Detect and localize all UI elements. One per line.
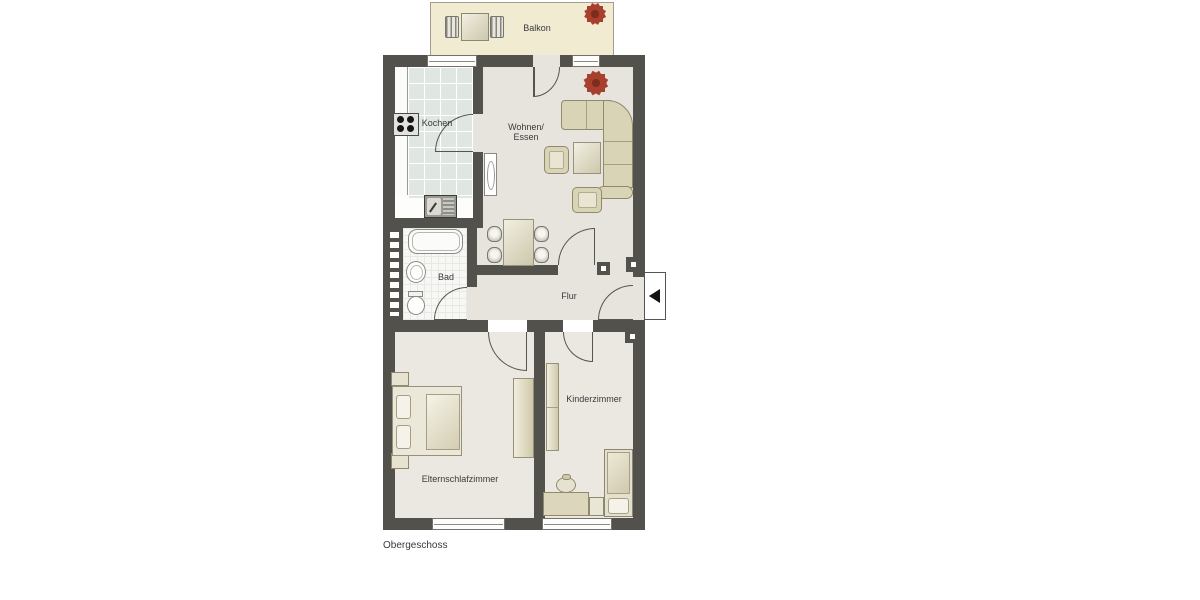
glass-block-wall (385, 228, 403, 320)
parents-room-label: Elternschlafzimmer (422, 474, 499, 484)
entrance-door-panel (598, 319, 633, 321)
balcony-label: Balkon (523, 23, 551, 33)
nightstand (589, 497, 604, 516)
radiator-cabinet (484, 153, 497, 196)
plant-starburst-icon (584, 3, 606, 25)
single-bed (604, 449, 633, 517)
patio-chair-left (445, 16, 459, 38)
stove-burner (397, 116, 404, 123)
washbasin (406, 261, 426, 283)
stove-burner (407, 125, 414, 132)
balcony-door-opening (533, 55, 560, 67)
patio-table (461, 13, 489, 41)
kids-room-label: Kinderzimmer (566, 394, 622, 404)
bed-mattress (607, 452, 630, 494)
wardrobe-divider-line (547, 407, 558, 408)
hall-bottom-wall-mid (527, 320, 563, 332)
stove-burner (407, 116, 414, 123)
hall-bottom-wall-left (395, 320, 488, 332)
floor-plan-page: Balkon (0, 0, 1200, 600)
patio-chair-right (490, 16, 504, 38)
glass-block-pattern (390, 232, 399, 316)
wall-post (625, 329, 639, 343)
nightstand (391, 372, 409, 386)
floor-title: Obergeschoss (383, 540, 447, 551)
post-dot (601, 266, 606, 271)
armchair-cushion (578, 192, 597, 208)
sofa-seam (604, 164, 632, 165)
armchair (544, 146, 569, 174)
dining-chair (534, 247, 549, 263)
wall-post (597, 262, 610, 275)
kitchen-door-panel (435, 151, 473, 153)
desk (543, 492, 589, 516)
bed-pillow (396, 425, 411, 449)
sofa-seam (604, 141, 632, 142)
bath-label: Bad (438, 272, 454, 282)
hall-label: Flur (561, 291, 577, 301)
desk-chair (556, 477, 576, 493)
bathtub (408, 229, 463, 254)
toilet-bowl (407, 296, 425, 315)
washbasin-inner (410, 265, 423, 280)
radiator-oval (487, 161, 495, 190)
window-pane (434, 524, 503, 525)
living-door-panel (594, 228, 596, 265)
desk-chair-back (562, 474, 571, 480)
balcony-door-panel (533, 67, 535, 97)
bed-pillow (608, 498, 629, 514)
window-pane (429, 61, 475, 62)
kitchen-living-wall-upper (473, 67, 483, 114)
stove (393, 113, 419, 136)
kids-room-door-panel (592, 332, 594, 362)
bed-mattress (426, 394, 460, 450)
window-pane (544, 524, 610, 525)
kitchen-label: Kochen (422, 118, 453, 128)
armchair (572, 187, 602, 213)
dining-chair (487, 247, 502, 263)
living-window (572, 55, 600, 67)
corner-sofa-right-arm (603, 138, 633, 188)
kitchen-window (427, 55, 477, 67)
dining-chair (534, 226, 549, 242)
living-label-line2: Essen (513, 132, 538, 142)
kitchen-sink-unit (424, 195, 457, 218)
bathtub-inner (412, 232, 460, 251)
double-bed (392, 386, 462, 456)
living-label: Wohnen/ Essen (508, 122, 544, 142)
bedroom-divider-wall (534, 332, 545, 518)
kitchen-bath-divider (395, 218, 483, 228)
living-label-line1: Wohnen/ (508, 122, 544, 132)
entrance-arrow-icon (649, 289, 660, 303)
wall-post (626, 257, 640, 272)
kids-room-window (542, 518, 612, 530)
stove-burner (397, 125, 404, 132)
dining-chair (487, 226, 502, 242)
bath-door-panel (434, 319, 467, 321)
armchair-cushion (549, 151, 564, 169)
bed-pillow (396, 395, 411, 419)
dining-table (503, 219, 534, 266)
parents-room-door-panel (526, 332, 528, 371)
outer-wall-top (383, 55, 645, 67)
hall-top-wall (477, 265, 558, 275)
post-dot (630, 334, 635, 339)
wardrobe (546, 363, 559, 451)
bath-right-wall (467, 228, 477, 287)
sink-drainer (443, 198, 454, 215)
wardrobe (513, 378, 534, 458)
corner-sofa-end-cap (597, 186, 633, 199)
window-pane (574, 61, 598, 62)
parents-room-window (432, 518, 505, 530)
post-dot (631, 262, 636, 267)
plant-starburst-icon (584, 71, 608, 95)
sofa-seam (586, 101, 587, 129)
coffee-table (573, 142, 601, 174)
kitchen-living-wall-lower (473, 152, 483, 228)
